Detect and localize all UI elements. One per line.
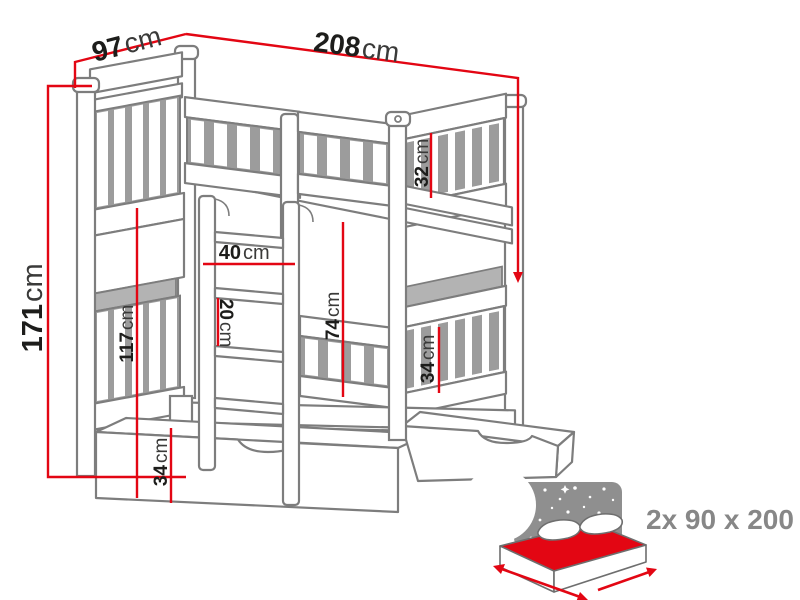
svg-text:40: 40 bbox=[219, 242, 241, 264]
ladder-left-hook bbox=[215, 199, 229, 216]
svg-text:cm: cm bbox=[215, 322, 236, 347]
bunk-bed-diagram: 97 cm 208 cm 171 cm 117 cm 40 cm 20 cm 7… bbox=[0, 0, 800, 600]
ladder-left-rail bbox=[199, 196, 215, 470]
mattress-note: 2x 90 x 200 bbox=[646, 504, 794, 535]
foot-front-post-cap bbox=[386, 112, 410, 126]
svg-text:74: 74 bbox=[323, 319, 344, 341]
ladder-right-hook bbox=[299, 205, 313, 222]
mattress-size-icon: 2x 90 x 200 bbox=[462, 468, 794, 600]
svg-text:cm: cm bbox=[17, 263, 49, 302]
upper-guardrail-right bbox=[298, 112, 392, 206]
svg-text:cm: cm bbox=[360, 32, 401, 68]
diagram-canvas: 97 cm 208 cm 171 cm 117 cm 40 cm 20 cm 7… bbox=[0, 0, 800, 600]
ladder-rung-3 bbox=[215, 346, 283, 362]
drawer-left bbox=[96, 418, 428, 512]
label-208cm: 208 cm bbox=[312, 26, 401, 68]
svg-text:32: 32 bbox=[412, 166, 433, 187]
svg-text:cm: cm bbox=[412, 139, 433, 164]
head-front-post bbox=[77, 84, 95, 476]
svg-text:cm: cm bbox=[151, 438, 172, 463]
svg-text:34: 34 bbox=[418, 362, 439, 384]
ladder-right-rail bbox=[283, 202, 299, 505]
label-20cm: 20 cm bbox=[215, 299, 236, 347]
label-74cm: 74 cm bbox=[323, 292, 344, 340]
svg-text:cm: cm bbox=[117, 305, 138, 330]
svg-text:cm: cm bbox=[418, 335, 439, 360]
svg-text:20: 20 bbox=[215, 299, 236, 320]
foot-back-post bbox=[505, 100, 523, 430]
svg-text:cm: cm bbox=[121, 20, 165, 59]
label-32cm: 32 cm bbox=[412, 139, 433, 187]
label-34cm-rail: 34 cm bbox=[418, 335, 439, 383]
svg-text:171: 171 bbox=[17, 304, 49, 352]
bed-drawing bbox=[73, 46, 574, 512]
label-117cm: 117 cm bbox=[117, 305, 138, 363]
svg-text:117: 117 bbox=[117, 332, 138, 363]
svg-text:cm: cm bbox=[323, 292, 344, 317]
svg-text:cm: cm bbox=[243, 242, 270, 264]
label-34cm-drawer: 34 cm bbox=[151, 438, 172, 486]
svg-text:34: 34 bbox=[151, 465, 172, 487]
svg-text:97: 97 bbox=[89, 30, 127, 68]
svg-text:208: 208 bbox=[312, 26, 362, 63]
foot-front-post bbox=[389, 118, 406, 440]
label-40cm: 40 cm bbox=[219, 242, 270, 264]
lower-guardrail-right bbox=[300, 316, 392, 408]
label-171cm: 171 cm bbox=[17, 263, 49, 352]
